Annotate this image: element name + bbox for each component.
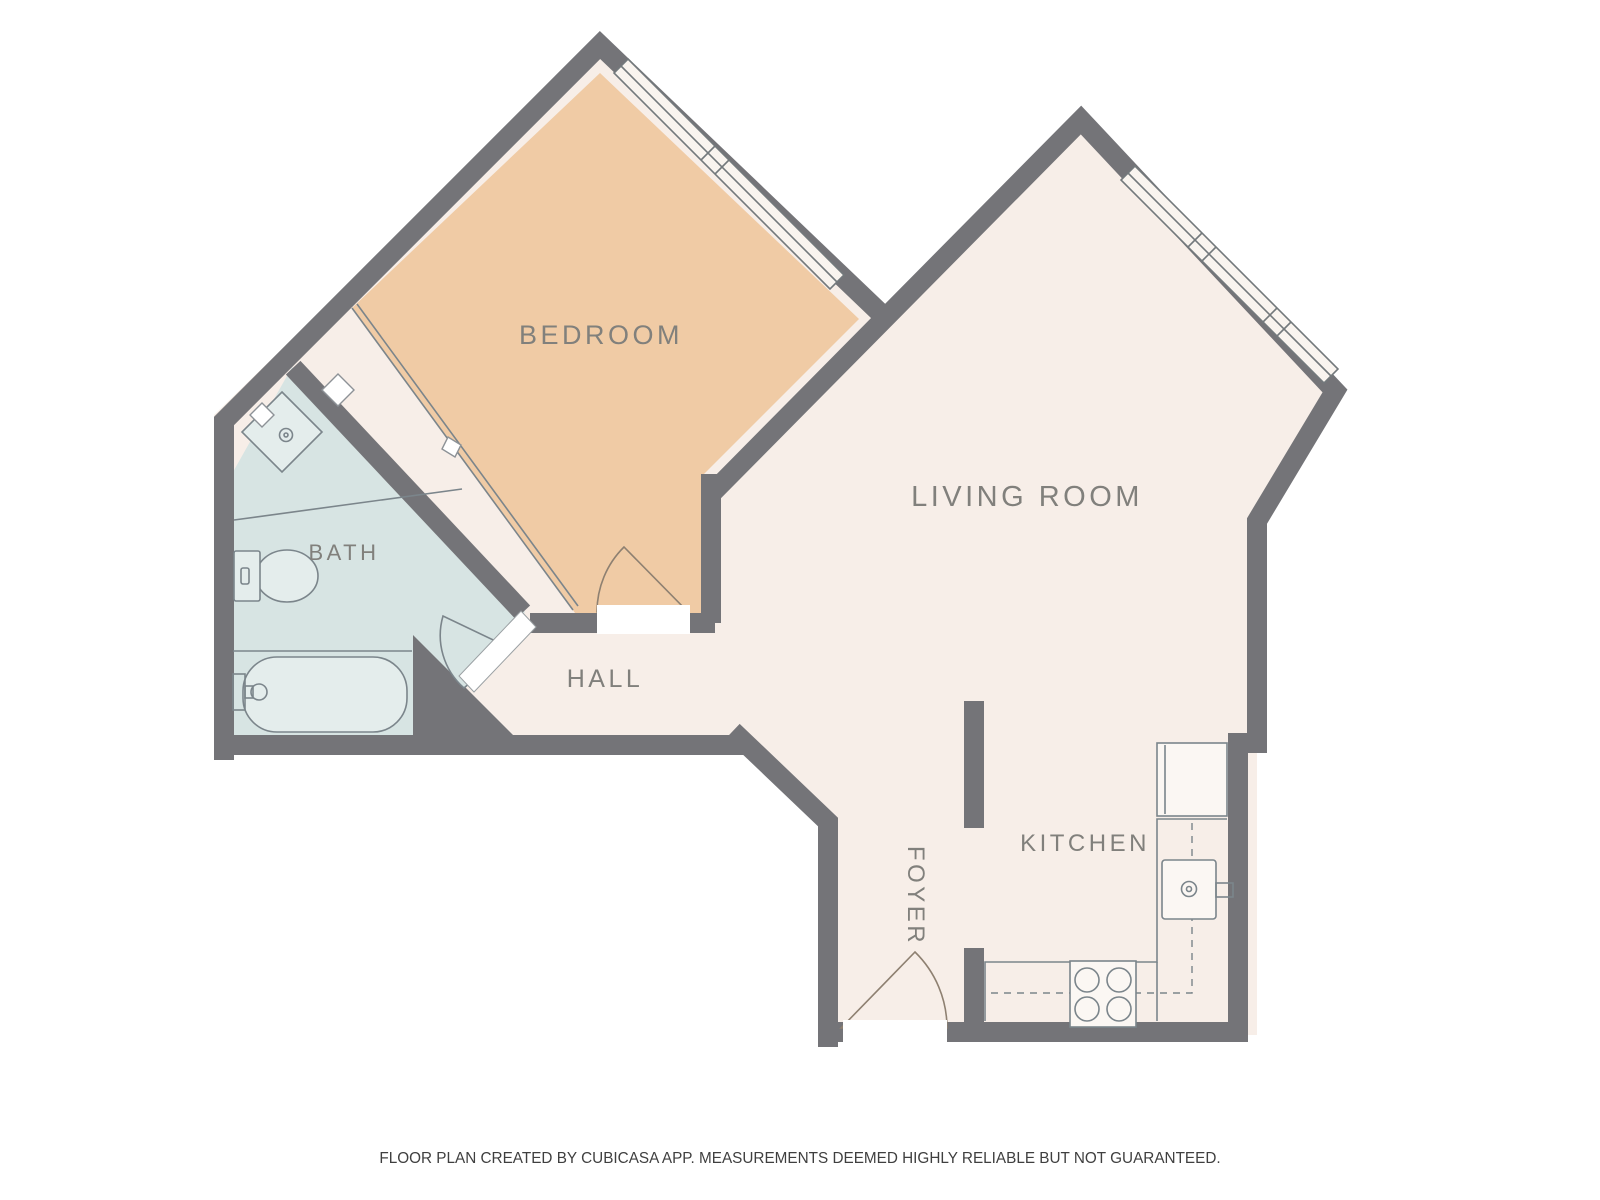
hall-label: HALL (567, 665, 644, 693)
bath-label: BATH (308, 540, 379, 565)
bedroom-label: BEDROOM (519, 320, 683, 350)
kitchen-label: KITCHEN (1020, 830, 1150, 857)
foyer-label: FOYER (902, 846, 929, 946)
bedroom-door-threshold (597, 605, 690, 634)
toilet-icon (234, 550, 318, 602)
floor-plan-page: BEDROOM LIVING ROOM BATH HALL FOYER KITC… (0, 0, 1600, 1200)
entry-door-threshold (843, 1020, 947, 1044)
stove-icon (1070, 961, 1136, 1027)
floor-plan-canvas: BEDROOM LIVING ROOM BATH HALL FOYER KITC… (0, 0, 1600, 1200)
refrigerator-icon (1157, 743, 1227, 816)
bathtub-icon (233, 651, 412, 732)
living-room-label: LIVING ROOM (911, 481, 1143, 513)
footer-disclaimer: FLOOR PLAN CREATED BY CUBICASA APP. MEAS… (379, 1150, 1220, 1167)
